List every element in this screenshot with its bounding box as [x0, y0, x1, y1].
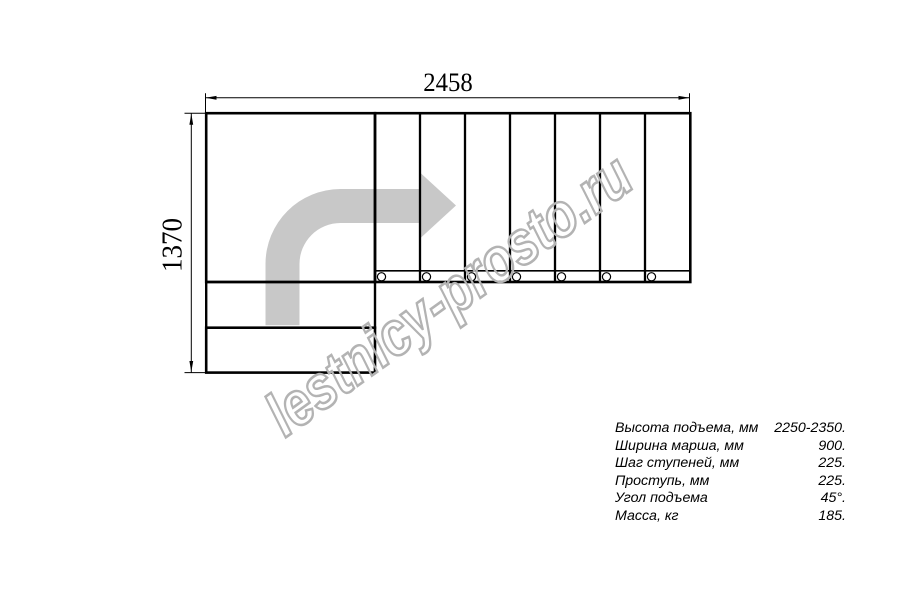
svg-text:1370: 1370: [158, 218, 189, 272]
svg-text:2458: 2458: [423, 67, 473, 97]
